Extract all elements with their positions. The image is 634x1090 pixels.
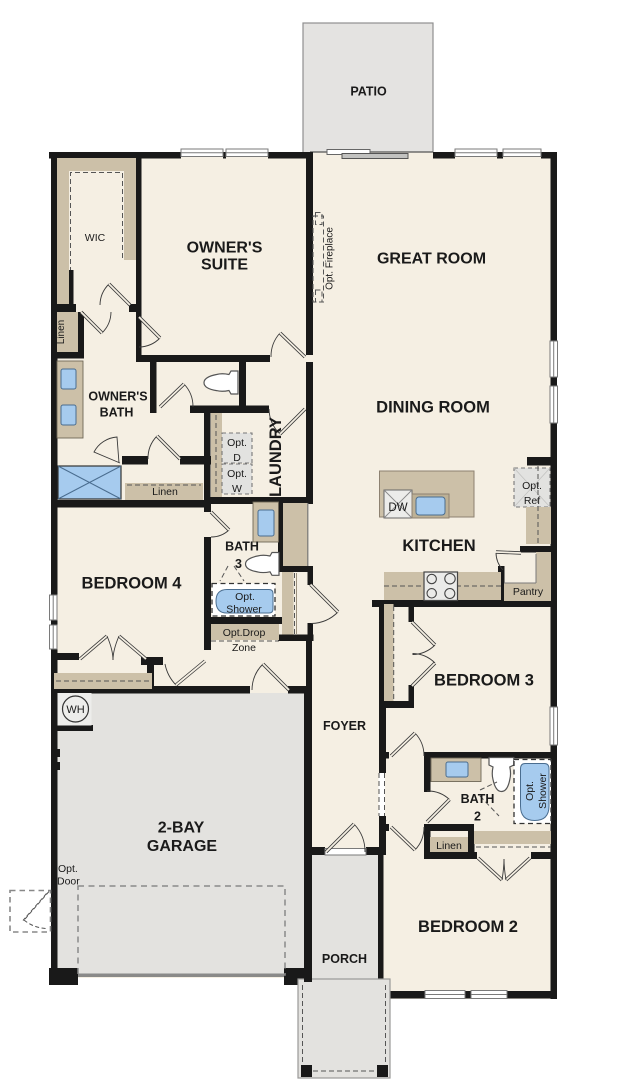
- svg-text:2: 2: [474, 810, 481, 824]
- svg-text:PATIO: PATIO: [350, 85, 387, 99]
- svg-text:Opt. Fireplace: Opt. Fireplace: [325, 227, 336, 290]
- svg-text:Pantry: Pantry: [513, 586, 544, 598]
- svg-text:Opt.: Opt.: [227, 437, 247, 449]
- svg-text:Opt.: Opt.: [235, 591, 255, 603]
- svg-text:WIC: WIC: [85, 232, 106, 244]
- svg-text:W: W: [232, 483, 242, 495]
- svg-text:Opt.: Opt.: [58, 863, 78, 875]
- svg-text:DINING ROOM: DINING ROOM: [376, 399, 490, 417]
- svg-text:KITCHEN: KITCHEN: [402, 537, 475, 555]
- svg-text:OWNER'S: OWNER'S: [88, 390, 147, 404]
- svg-text:Opt.: Opt.: [524, 781, 536, 801]
- svg-text:LAUNDRY: LAUNDRY: [267, 417, 285, 497]
- svg-text:PORCH: PORCH: [322, 952, 367, 966]
- svg-text:3: 3: [235, 557, 242, 571]
- svg-text:DW: DW: [388, 502, 407, 514]
- svg-text:SUITE: SUITE: [201, 257, 248, 274]
- svg-text:Shower: Shower: [226, 604, 262, 616]
- svg-text:BATH: BATH: [100, 406, 134, 420]
- svg-text:Shower: Shower: [537, 773, 549, 809]
- svg-text:WH: WH: [66, 704, 84, 716]
- svg-text:BATH: BATH: [461, 792, 495, 806]
- svg-text:Door: Door: [57, 876, 80, 888]
- svg-text:2-BAY: 2-BAY: [158, 820, 205, 837]
- svg-text:BEDROOM 3: BEDROOM 3: [434, 672, 534, 690]
- svg-text:BATH: BATH: [225, 540, 259, 554]
- svg-text:BEDROOM 4: BEDROOM 4: [82, 575, 183, 593]
- svg-text:Linen: Linen: [152, 486, 178, 498]
- svg-text:Opt.Drop: Opt.Drop: [223, 627, 266, 639]
- svg-text:BEDROOM 2: BEDROOM 2: [418, 918, 518, 936]
- svg-text:Opt.: Opt.: [227, 468, 247, 480]
- svg-text:Zone: Zone: [232, 642, 256, 654]
- svg-text:FOYER: FOYER: [323, 719, 366, 733]
- svg-text:Linen: Linen: [56, 320, 67, 344]
- svg-text:OWNER'S: OWNER'S: [187, 240, 263, 257]
- svg-text:Opt.: Opt.: [522, 480, 542, 492]
- svg-text:Linen: Linen: [436, 840, 462, 852]
- svg-text:D: D: [233, 452, 241, 464]
- svg-text:GARAGE: GARAGE: [147, 838, 218, 855]
- svg-text:GREAT ROOM: GREAT ROOM: [377, 251, 486, 268]
